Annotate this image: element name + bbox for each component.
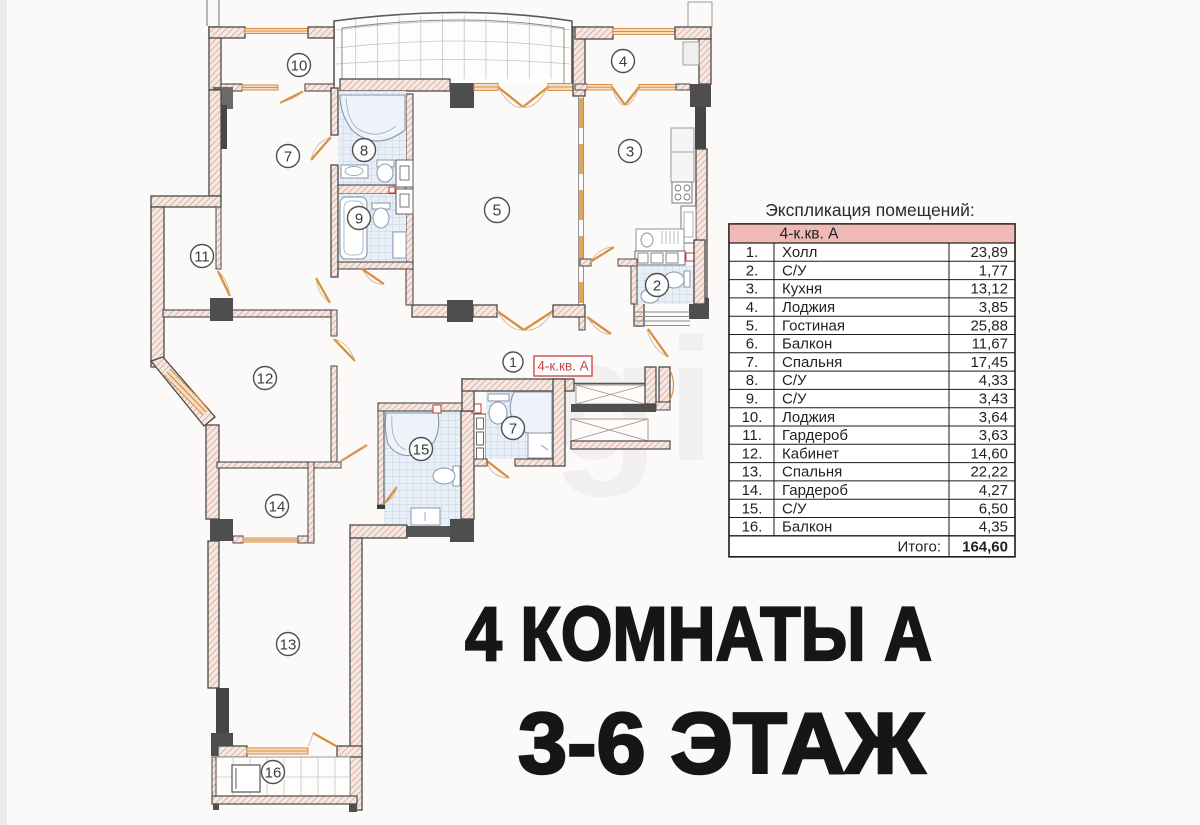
svg-text:9.: 9.: [746, 391, 759, 408]
svg-text:3: 3: [626, 143, 634, 160]
svg-text:3,63: 3,63: [979, 427, 1008, 444]
svg-text:С/У: С/У: [782, 372, 807, 389]
svg-text:13,12: 13,12: [970, 281, 1008, 298]
svg-text:Лоджия: Лоджия: [782, 409, 835, 426]
svg-text:11: 11: [194, 248, 210, 265]
svg-text:12.: 12.: [742, 445, 763, 462]
svg-text:Спальня: Спальня: [782, 464, 842, 481]
svg-text:4: 4: [619, 53, 627, 70]
svg-text:3,85: 3,85: [979, 299, 1008, 316]
svg-text:4 КОМНАТЫ А: 4 КОМНАТЫ А: [465, 592, 932, 677]
svg-text:25,88: 25,88: [970, 317, 1008, 334]
svg-text:Балкон: Балкон: [782, 336, 832, 353]
svg-text:16: 16: [265, 764, 282, 781]
svg-text:12: 12: [257, 370, 274, 387]
svg-text:С/У: С/У: [782, 262, 807, 279]
svg-text:4,35: 4,35: [979, 519, 1008, 536]
svg-text:Холл: Холл: [782, 244, 817, 261]
svg-text:7.: 7.: [746, 354, 759, 371]
svg-text:14,60: 14,60: [970, 445, 1008, 462]
svg-text:13: 13: [280, 636, 297, 653]
svg-text:13.: 13.: [742, 464, 763, 481]
svg-text:4.: 4.: [746, 299, 759, 316]
svg-text:5: 5: [493, 203, 502, 220]
svg-text:3.: 3.: [746, 281, 759, 298]
svg-text:164,60: 164,60: [962, 538, 1008, 555]
svg-text:4-к.кв. А: 4-к.кв. А: [780, 226, 839, 243]
svg-text:16.: 16.: [742, 519, 763, 536]
svg-text:3,64: 3,64: [979, 409, 1008, 426]
svg-text:Итого:: Итого:: [898, 538, 941, 555]
svg-text:Балкон: Балкон: [782, 519, 832, 536]
svg-text:15: 15: [413, 441, 430, 458]
svg-text:10: 10: [291, 57, 308, 74]
svg-text:11.: 11.: [742, 427, 762, 444]
svg-text:23,89: 23,89: [970, 244, 1008, 261]
svg-text:1,77: 1,77: [979, 262, 1008, 279]
svg-text:5.: 5.: [746, 317, 759, 334]
svg-text:15.: 15.: [742, 500, 763, 517]
svg-text:2: 2: [653, 277, 661, 294]
svg-text:С/У: С/У: [782, 391, 807, 408]
svg-text:17,45: 17,45: [970, 354, 1008, 371]
svg-text:1: 1: [509, 354, 517, 370]
svg-text:4,27: 4,27: [979, 482, 1008, 499]
svg-text:9: 9: [355, 210, 363, 227]
svg-text:10.: 10.: [742, 409, 763, 426]
svg-text:3,43: 3,43: [979, 391, 1008, 408]
svg-text:3-6 ЭТАЖ: 3-6 ЭТАЖ: [518, 696, 926, 792]
svg-text:22,22: 22,22: [970, 464, 1008, 481]
svg-text:Кабинет: Кабинет: [782, 445, 839, 462]
svg-text:6,50: 6,50: [979, 500, 1008, 517]
svg-text:Экспликация помещений:: Экспликация помещений:: [765, 200, 975, 220]
svg-text:Гардероб: Гардероб: [782, 427, 848, 444]
svg-text:Гостиная: Гостиная: [782, 317, 845, 334]
svg-text:2.: 2.: [746, 262, 759, 279]
svg-text:6.: 6.: [746, 336, 759, 353]
svg-text:14: 14: [269, 498, 286, 515]
svg-text:14.: 14.: [742, 482, 763, 499]
svg-text:Гардероб: Гардероб: [782, 482, 848, 499]
svg-text:8.: 8.: [746, 372, 759, 389]
svg-text:7: 7: [284, 148, 292, 165]
svg-text:Кухня: Кухня: [782, 281, 822, 298]
svg-text:11,67: 11,67: [972, 336, 1008, 353]
svg-text:4,33: 4,33: [979, 372, 1008, 389]
svg-text:8: 8: [360, 142, 368, 159]
svg-text:4-к.кв. А: 4-к.кв. А: [537, 359, 588, 374]
svg-text:С/У: С/У: [782, 500, 807, 517]
svg-text:Лоджия: Лоджия: [782, 299, 835, 316]
svg-text:Спальня: Спальня: [782, 354, 842, 371]
svg-text:7: 7: [509, 420, 517, 437]
svg-text:1.: 1.: [746, 244, 759, 261]
